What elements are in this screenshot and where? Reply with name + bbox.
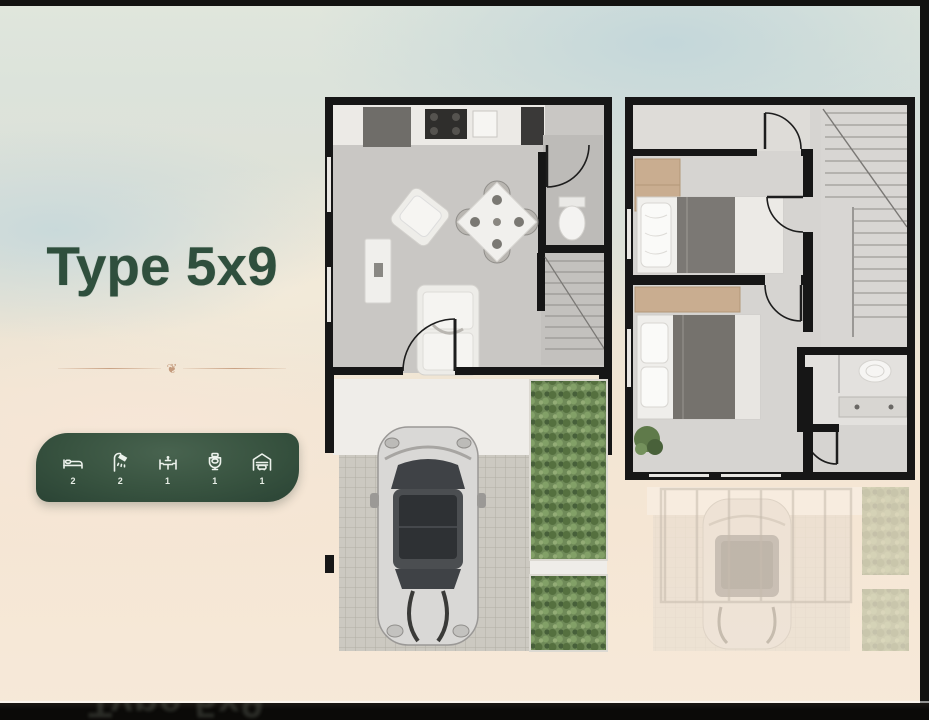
amenity-item-bedrooms: 2: [56, 450, 90, 486]
reflection-title: Type 5x9: [88, 703, 264, 720]
ground-floor-plan: [325, 97, 612, 657]
shower-icon: [108, 450, 132, 474]
page-title: Type 5x9: [28, 236, 296, 297]
bottom-reflection-band: Type 5x9: [0, 703, 929, 720]
landing-zone: [633, 105, 810, 151]
wc: [538, 135, 607, 253]
amenity-count: 2: [118, 477, 123, 486]
slide: Type 5x9 ❦ 2 2: [0, 0, 929, 720]
top-letterbox-strip: [0, 0, 929, 6]
garage-icon: [250, 450, 274, 474]
amenity-count: 1: [259, 477, 264, 486]
amenity-count: 2: [70, 477, 75, 486]
upper-floor-plan: [625, 97, 915, 655]
ornament-divider: ❦: [58, 360, 286, 376]
toilet-icon: [203, 450, 227, 474]
amenity-item-garage: 1: [245, 450, 279, 486]
tv-console: [365, 239, 391, 303]
ghosted-carport: [645, 482, 909, 655]
sofa: [417, 285, 479, 375]
staircase: [537, 253, 607, 365]
amenity-count: 1: [165, 477, 170, 486]
staircase: [821, 105, 907, 350]
kitchen: [333, 105, 545, 147]
garden: [530, 380, 607, 651]
car: [370, 427, 486, 645]
divider-line-left: [58, 368, 161, 369]
bed-icon: [61, 450, 85, 474]
divider-line-right: [183, 368, 286, 369]
amenity-bar: 2 2 1 1: [36, 433, 299, 502]
right-letterbox-strip: [920, 0, 929, 720]
amenity-item-dining: 1: [151, 450, 185, 486]
dining-table-icon: [156, 450, 180, 474]
floral-ornament-icon: ❦: [161, 362, 184, 375]
amenity-count: 1: [212, 477, 217, 486]
amenity-item-showers: 2: [103, 450, 137, 486]
amenity-item-toilets: 1: [198, 450, 232, 486]
